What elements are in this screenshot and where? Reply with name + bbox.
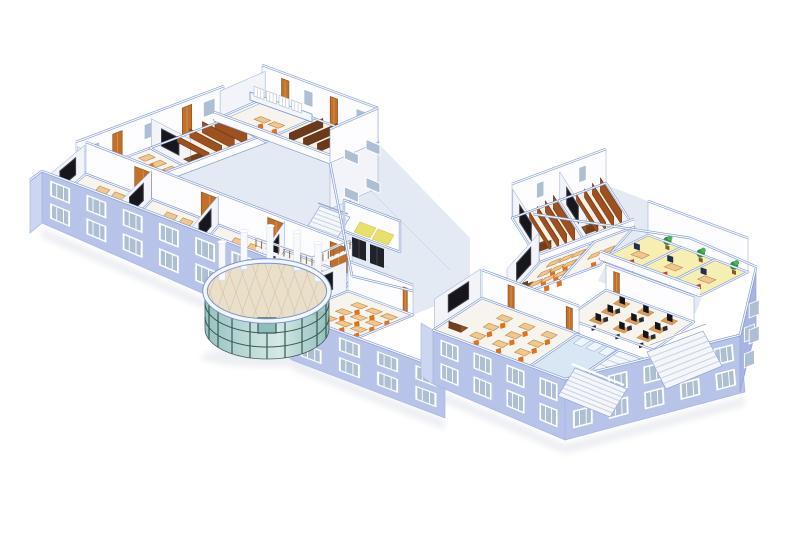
- right-west-gable: [421, 323, 433, 384]
- rotunda-column-1: [218, 240, 227, 282]
- building-rendering-canvas: [0, 0, 800, 550]
- left-west-gable: [30, 171, 42, 233]
- building-cutaway-rendering: [0, 0, 800, 550]
